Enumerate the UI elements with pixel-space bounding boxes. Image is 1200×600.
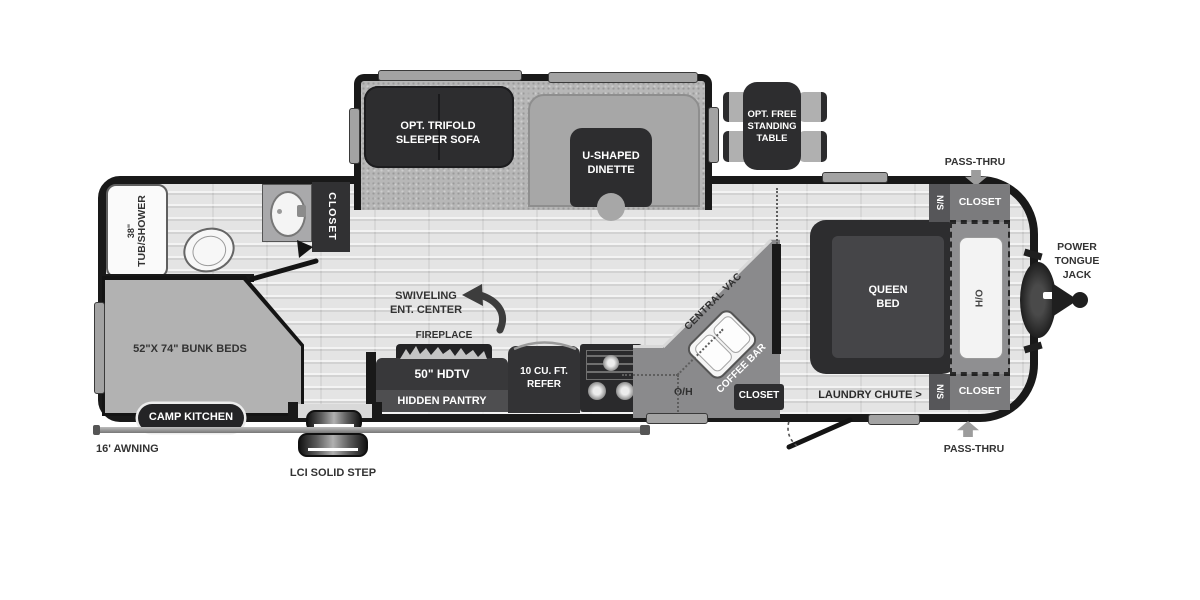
dinette-label: U-SHAPED DINETTE	[573, 150, 649, 178]
dinette-notch	[597, 193, 625, 221]
camp-kitchen-label: CAMP KITCHEN	[149, 411, 233, 425]
tongue-jack-icon	[1020, 262, 1056, 338]
counter-edge	[633, 345, 663, 348]
hdtv-label: 50" HDTV	[376, 367, 508, 382]
bathroom-closet: CLOSET	[312, 182, 350, 252]
bedroom-wall	[772, 244, 781, 354]
free-table-label: OPT. FREE STANDING TABLE	[745, 109, 799, 145]
bathroom-closet-label: CLOSET	[324, 193, 337, 242]
coupler-icon	[1072, 292, 1088, 308]
chair-icon	[799, 92, 827, 122]
chair-icon	[799, 131, 827, 162]
tub-label: TUB/SHOWER	[136, 195, 148, 267]
oh-dotted-line	[677, 375, 679, 412]
refer-label: 10 CU. FT. REFER	[512, 366, 576, 391]
nightstand-top: N/S	[929, 184, 950, 222]
awning-icon	[94, 427, 648, 433]
drain	[277, 209, 282, 214]
entry-step-icon	[298, 433, 368, 457]
hidden-pantry-label: HIDDEN PANTRY	[376, 395, 508, 409]
swivel-line1: SWIVELING	[395, 290, 457, 302]
awning-cap	[640, 425, 650, 435]
burner-icon	[603, 355, 619, 371]
headboard: H/O	[959, 237, 1003, 359]
kitchen-closet-label: CLOSET	[734, 390, 784, 403]
power-tongue-jack-label: POWER TONGUE JACK	[1046, 240, 1108, 283]
swivel-ent-center-label: SWIVELING ENT. CENTER	[384, 290, 468, 318]
ns-top-label: N/S	[934, 195, 945, 210]
awning-label: 16' AWNING	[96, 443, 159, 457]
bedroom-entry-door	[789, 420, 850, 447]
rv-floorplan: OPT. TRIFOLD SLEEPER SOFA U-SHAPED DINET…	[0, 0, 1200, 600]
ho-label: H/O	[975, 289, 988, 307]
queen-bed-label: QUEEN BED	[858, 284, 918, 312]
tub-size-label: 38"	[126, 195, 136, 267]
ns-bottom-label: N/S	[934, 384, 945, 399]
window-icon	[378, 70, 522, 81]
awning-cap	[93, 425, 100, 435]
closet-top-label: CLOSET	[950, 196, 1010, 209]
nightstand-bottom: N/S	[929, 374, 950, 410]
window-icon	[548, 72, 698, 83]
lci-step-label: LCI SOLID STEP	[274, 467, 392, 481]
step-tread	[308, 448, 358, 451]
tub-shower: 38" TUB/SHOWER	[106, 184, 168, 278]
window-icon	[868, 414, 920, 425]
door-post	[288, 402, 298, 420]
door-post	[372, 402, 382, 420]
swivel-line2: ENT. CENTER	[390, 304, 462, 316]
oh-dotted-line	[622, 374, 678, 376]
closet-bottom-label: CLOSET	[950, 385, 1010, 398]
window-icon	[822, 172, 888, 183]
pass-thru-up-arrow-icon	[957, 421, 979, 437]
bedroom-curtain-line	[776, 188, 778, 244]
window-icon	[646, 413, 708, 424]
burner-icon	[616, 382, 634, 400]
toilet-bowl	[189, 231, 231, 270]
burner-icon	[588, 382, 606, 400]
fireplace-label: FIREPLACE	[408, 330, 480, 343]
ho-wardrobe-area: H/O	[950, 222, 1010, 374]
bunk-beds-label: 52"X 74" BUNK BEDS	[114, 343, 266, 357]
sofa-label: OPT. TRIFOLD SLEEPER SOFA	[382, 120, 494, 148]
faucet-icon	[297, 205, 306, 217]
pass-thru-top-label: PASS-THRU	[938, 156, 1012, 169]
laundry-chute-label: LAUNDRY CHUTE >	[814, 389, 926, 403]
bath-vanity	[262, 184, 312, 242]
free-standing-table-group: OPT. FREE STANDING TABLE	[714, 82, 830, 174]
stove-icon	[580, 344, 642, 412]
window-icon	[349, 108, 360, 164]
pass-thru-bottom-label: PASS-THRU	[935, 443, 1013, 456]
door-swing-arc	[788, 421, 797, 446]
window-icon	[94, 302, 105, 394]
